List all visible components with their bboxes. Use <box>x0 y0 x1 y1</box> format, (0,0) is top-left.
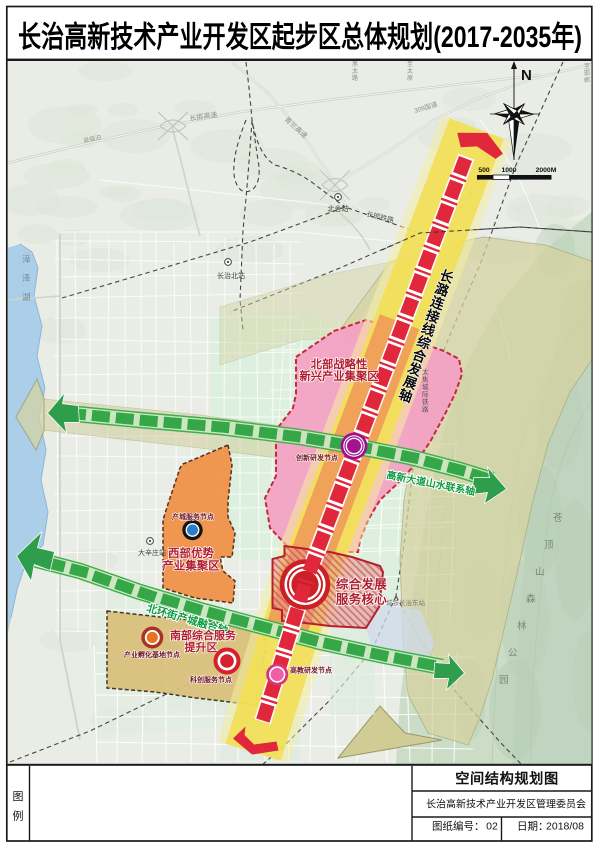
svg-text:新兴产业集聚区: 新兴产业集聚区 <box>299 369 378 383</box>
svg-text:例: 例 <box>13 809 24 823</box>
svg-text:产业集聚区: 产业集聚区 <box>162 559 220 573</box>
svg-text:林: 林 <box>517 620 527 632</box>
svg-text:路: 路 <box>352 74 358 82</box>
svg-text:原: 原 <box>407 75 413 82</box>
svg-text:综合发展: 综合发展 <box>336 577 387 592</box>
svg-text:1000: 1000 <box>501 167 516 174</box>
svg-text:郸: 郸 <box>584 76 590 84</box>
svg-text:铁: 铁 <box>422 397 429 406</box>
svg-text:产业孵化基地节点: 产业孵化基地节点 <box>124 650 180 659</box>
svg-text:路: 路 <box>422 405 429 414</box>
svg-text:长治北站: 长治北站 <box>217 271 245 280</box>
svg-text:漳: 漳 <box>22 254 31 264</box>
svg-text:N: N <box>521 67 532 84</box>
svg-text:500: 500 <box>478 167 490 174</box>
svg-text:图纸编号：: 图纸编号： <box>432 820 485 833</box>
svg-text:焦: 焦 <box>422 375 429 384</box>
svg-text:黑: 黑 <box>352 61 358 68</box>
svg-text:城: 城 <box>422 383 429 391</box>
svg-text:长治高新技术产业开发区管理委员会: 长治高新技术产业开发区管理委员会 <box>426 798 586 811</box>
svg-text:创新研发节点: 创新研发节点 <box>295 453 338 462</box>
svg-text:泽: 泽 <box>22 273 31 283</box>
svg-text:提升区: 提升区 <box>185 640 218 654</box>
svg-text:苍: 苍 <box>553 512 563 524</box>
svg-text:02: 02 <box>486 821 498 833</box>
svg-text:空间结构规划图: 空间结构规划图 <box>455 771 559 788</box>
svg-text:服务核心: 服务核心 <box>336 592 387 607</box>
svg-text:科创服务节点: 科创服务节点 <box>190 675 232 684</box>
svg-text:西部优势: 西部优势 <box>168 546 214 560</box>
svg-text:太: 太 <box>407 67 413 75</box>
svg-text:邯: 邯 <box>584 69 590 77</box>
svg-text:城铁长治东站: 城铁长治东站 <box>386 598 426 607</box>
svg-text:顶: 顶 <box>544 540 554 551</box>
svg-text:园: 园 <box>499 675 509 686</box>
svg-text:产城服务节点: 产城服务节点 <box>172 512 214 521</box>
svg-text:至: 至 <box>584 63 590 70</box>
svg-text:高教研发节点: 高教研发节点 <box>290 666 332 675</box>
svg-text:2018/08: 2018/08 <box>546 821 584 833</box>
svg-text:大辛庄站: 大辛庄站 <box>138 548 166 557</box>
svg-text:森: 森 <box>526 593 536 605</box>
svg-text:图: 图 <box>13 790 24 803</box>
svg-text:太: 太 <box>422 367 429 376</box>
svg-text:公: 公 <box>508 648 518 659</box>
svg-text:南部综合服务: 南部综合服务 <box>170 628 237 642</box>
svg-text:日期：: 日期： <box>517 821 549 833</box>
svg-text:北部战略性: 北部战略性 <box>311 357 368 371</box>
svg-text:2000M: 2000M <box>536 167 557 174</box>
svg-text:北舍站: 北舍站 <box>328 204 349 213</box>
svg-text:山: 山 <box>535 567 545 578</box>
svg-text:湖: 湖 <box>22 292 31 302</box>
svg-text:际: 际 <box>422 390 429 399</box>
svg-text:至: 至 <box>407 61 413 68</box>
svg-text:太: 太 <box>352 67 358 75</box>
svg-text:长治高新技术产业开发区起步区总体规划(2017-2035年): 长治高新技术产业开发区起步区总体规划(2017-2035年) <box>18 21 582 54</box>
